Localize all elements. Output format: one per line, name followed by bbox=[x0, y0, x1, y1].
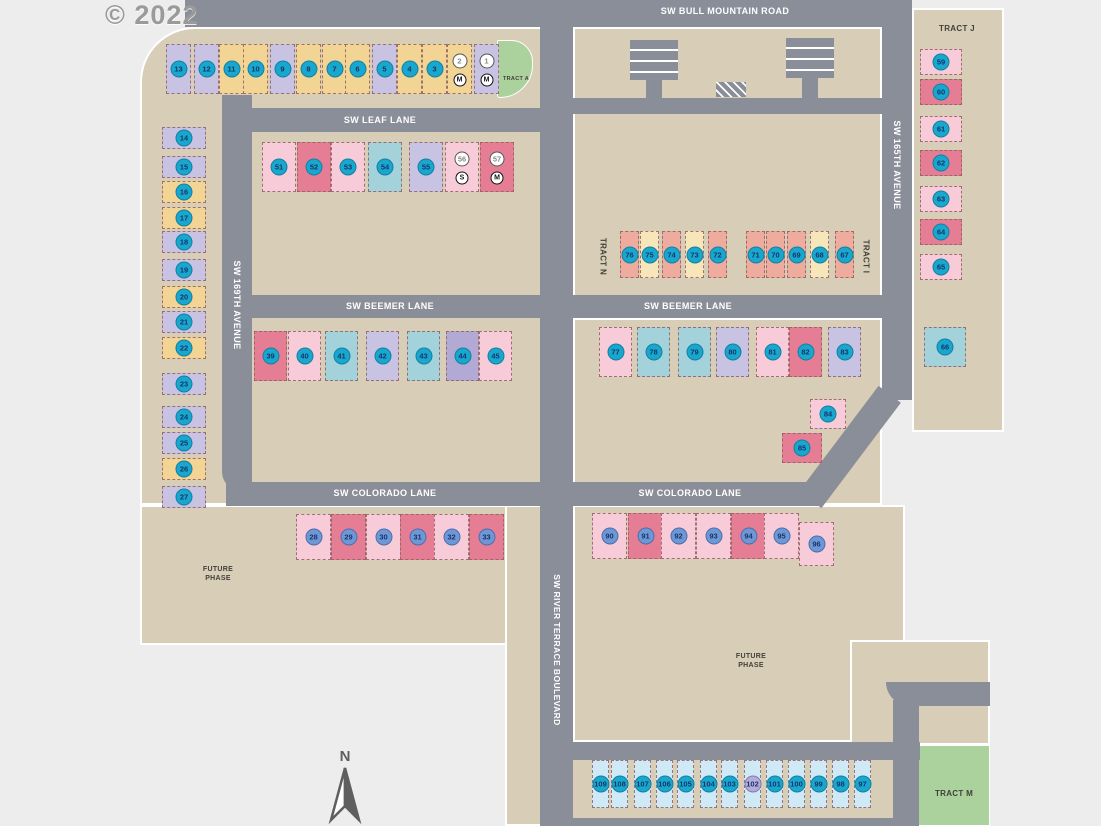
road-bottom-edge bbox=[560, 818, 910, 826]
label-tract-i: TRACT I bbox=[862, 222, 871, 292]
label-sw-colorado-right: SW COLORADO LANE bbox=[610, 487, 770, 499]
label-future-phase-west: FUTURE PHASE bbox=[192, 565, 244, 583]
road-internal-north bbox=[573, 98, 882, 114]
label-tract-n: TRACT N bbox=[599, 222, 608, 292]
road-bottom-right-vertical bbox=[893, 700, 919, 826]
parking-stub-middle bbox=[716, 82, 746, 97]
plat-map: SW BULL MOUNTAIN ROAD SW LEAF LANE SW BE… bbox=[0, 0, 1101, 826]
label-sw-colorado-left: SW COLORADO LANE bbox=[305, 487, 465, 499]
land-corridor-river-terrace bbox=[505, 505, 543, 826]
copyright-watermark: © 2022 bbox=[105, 0, 198, 31]
parking-driveway-east bbox=[802, 76, 818, 100]
label-tract-j: TRACT J bbox=[927, 24, 987, 33]
north-label: N bbox=[333, 748, 357, 765]
parking-court-west bbox=[630, 40, 678, 80]
north-arrow-icon bbox=[323, 764, 367, 826]
label-sw-beemer-right: SW BEEMER LANE bbox=[608, 300, 768, 312]
tract-m-area bbox=[918, 745, 990, 826]
label-tract-m: TRACT M bbox=[924, 789, 984, 798]
label-future-phase-east: FUTURE PHASE bbox=[725, 652, 777, 670]
land-block-northwest bbox=[140, 27, 543, 505]
label-tract-a: TRACT A bbox=[496, 75, 536, 84]
land-block-north-middle bbox=[573, 27, 882, 318]
label-sw-165th-avenue: SW 165TH AVENUE bbox=[891, 90, 903, 240]
road-bottom-lane bbox=[543, 742, 920, 760]
label-sw-leaf-lane: SW LEAF LANE bbox=[300, 114, 460, 126]
label-sw-river-terrace: SW RIVER TERRACE BOULEVARD bbox=[551, 545, 563, 755]
label-sw-169th-avenue: SW 169TH AVENUE bbox=[231, 230, 243, 380]
parking-court-east bbox=[786, 38, 834, 78]
label-sw-beemer-left: SW BEEMER LANE bbox=[310, 300, 470, 312]
land-block-east-column bbox=[912, 8, 1004, 432]
label-sw-bull-mountain: SW BULL MOUNTAIN ROAD bbox=[590, 5, 860, 17]
parking-driveway-west bbox=[646, 78, 662, 100]
